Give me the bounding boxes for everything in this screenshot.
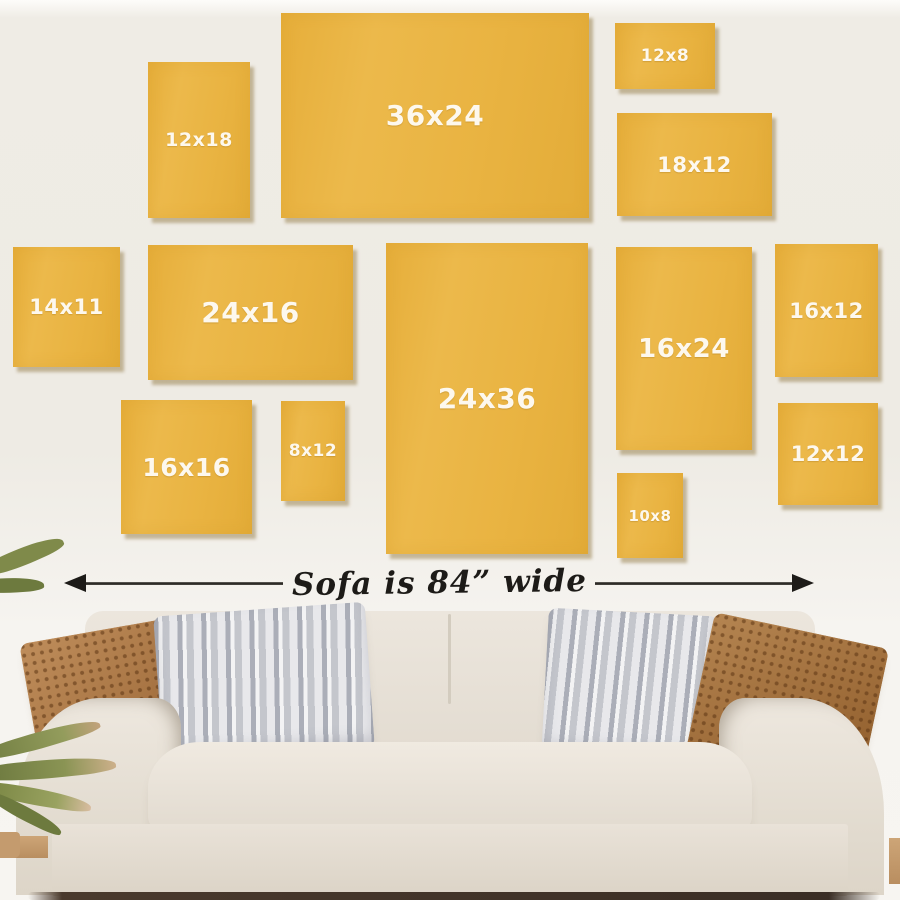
frame-size-label: 24x16	[201, 296, 300, 329]
arrow-line-left	[86, 582, 283, 585]
sofa-width-arrow: Sofa is 84” wide	[64, 566, 814, 600]
pillow-gray-left	[153, 602, 375, 762]
art-frame-18x12: 18x12	[617, 113, 772, 216]
frame-size-label: 12x12	[791, 442, 866, 466]
arrow-left-head-icon	[64, 574, 86, 592]
frame-size-label: 24x36	[438, 382, 537, 415]
art-frame-16x16: 16x16	[121, 400, 252, 534]
floor-patch-right	[889, 838, 900, 884]
art-frame-8x12: 8x12	[281, 401, 345, 501]
art-frame-10x8: 10x8	[617, 473, 683, 558]
sofa-width-label: Sofa is 84” wide	[282, 563, 595, 603]
plant-leaf	[0, 576, 44, 596]
frame-size-label: 16x24	[638, 334, 730, 364]
art-frame-16x24: 16x24	[616, 247, 752, 450]
sofa-seat-cushion	[148, 742, 752, 836]
frame-size-label: 12x18	[165, 129, 233, 151]
frame-size-label: 18x12	[657, 153, 732, 177]
frame-size-label: 10x8	[629, 507, 672, 525]
art-frame-24x16: 24x16	[148, 245, 353, 380]
plant-pot	[0, 832, 20, 858]
sofa-base	[52, 824, 848, 896]
art-frame-12x12: 12x12	[778, 403, 878, 505]
art-frame-12x8: 12x8	[615, 23, 715, 89]
arrow-right-head-icon	[792, 574, 814, 592]
frame-size-label: 16x12	[789, 299, 864, 323]
sofa-back-seam	[448, 614, 451, 704]
frame-size-label: 16x16	[142, 453, 230, 482]
frame-size-label: 14x11	[29, 295, 104, 319]
frame-size-label: 12x8	[641, 46, 689, 66]
art-frame-14x11: 14x11	[13, 247, 120, 367]
art-frame-24x36: 24x36	[386, 243, 588, 554]
wall-art-size-guide: 12x1836x2412x818x1214x1124x1616x168x1224…	[0, 0, 900, 900]
floor-shadow-line	[28, 892, 880, 900]
plant-leaf	[0, 531, 66, 583]
art-frame-36x24: 36x24	[281, 13, 589, 218]
arrow-line-right	[595, 582, 792, 585]
art-frame-12x18: 12x18	[148, 62, 250, 218]
frame-size-label: 8x12	[289, 441, 337, 461]
frame-size-label: 36x24	[386, 99, 485, 132]
art-frame-16x12: 16x12	[775, 244, 878, 377]
